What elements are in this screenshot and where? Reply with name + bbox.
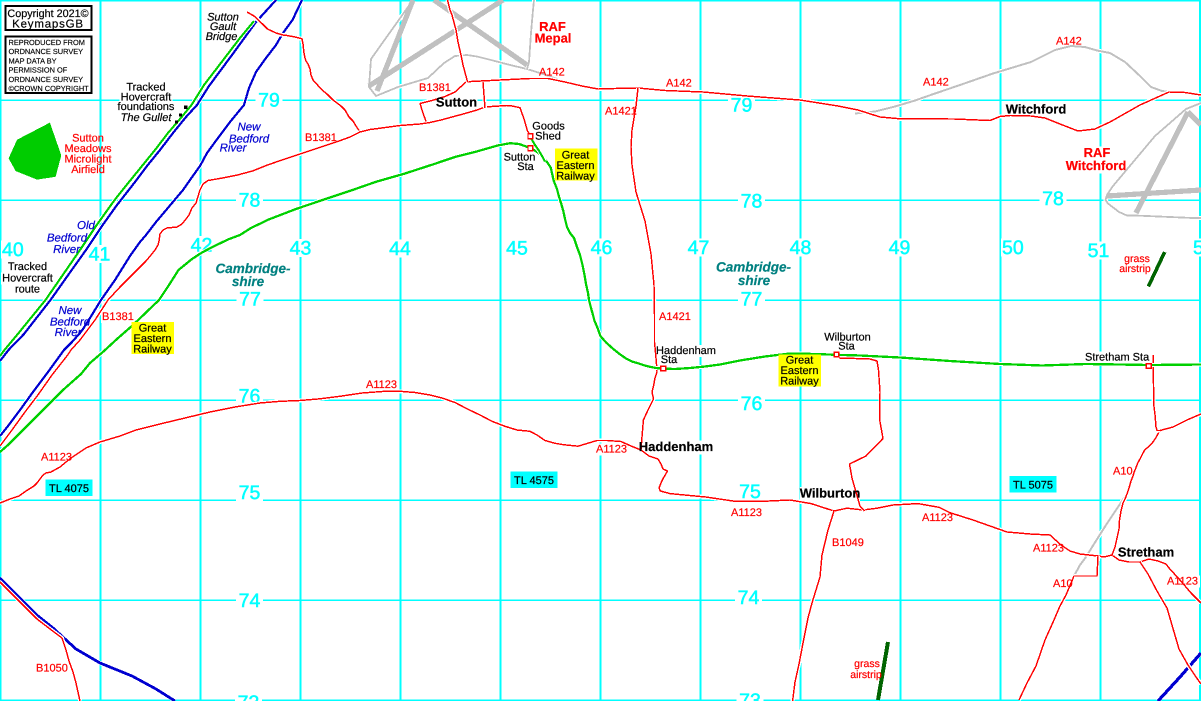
- svg-text:River: River: [55, 327, 83, 339]
- svg-text:Railway: Railway: [780, 375, 819, 387]
- svg-text:River: River: [53, 244, 81, 256]
- svg-text:A1421: A1421: [659, 311, 691, 323]
- svg-text:New: New: [237, 122, 261, 134]
- svg-text:B1381: B1381: [419, 82, 451, 94]
- svg-text:49: 49: [889, 237, 911, 259]
- svg-text:B1050: B1050: [36, 663, 68, 675]
- svg-text:New: New: [58, 305, 82, 317]
- svg-text:TL 4075: TL 4075: [49, 483, 89, 495]
- svg-text:A1123: A1123: [1033, 543, 1064, 555]
- svg-text:51: 51: [1088, 240, 1110, 262]
- svg-text:ORDNANCE SURVEY: ORDNANCE SURVEY: [9, 75, 84, 84]
- svg-text:76: 76: [741, 393, 763, 415]
- svg-text:shire: shire: [232, 274, 265, 289]
- svg-text:Sta: Sta: [517, 161, 534, 173]
- svg-text:shire: shire: [738, 273, 771, 288]
- svg-text:PERMISSION OF: PERMISSION OF: [9, 66, 68, 75]
- svg-text:Sta: Sta: [838, 341, 855, 353]
- svg-text:Witchford: Witchford: [1066, 158, 1127, 173]
- svg-text:Stretham: Stretham: [1118, 545, 1174, 560]
- svg-text:B1381: B1381: [102, 311, 134, 323]
- svg-text:route: route: [15, 284, 40, 296]
- svg-text:52: 52: [1193, 237, 1201, 259]
- svg-text:Shed: Shed: [535, 131, 561, 143]
- svg-text:77: 77: [239, 289, 261, 311]
- svg-text:KeymapsGB: KeymapsGB: [12, 19, 84, 31]
- svg-text:48: 48: [790, 237, 812, 259]
- svg-text:Witchford: Witchford: [1006, 102, 1067, 117]
- svg-text:Railway: Railway: [133, 343, 172, 355]
- svg-text:A1123: A1123: [1167, 576, 1198, 588]
- svg-text:74: 74: [738, 587, 760, 609]
- svg-text:74: 74: [239, 590, 261, 612]
- svg-text:73: 73: [238, 692, 260, 701]
- svg-text:A142: A142: [1056, 36, 1082, 48]
- svg-text:50: 50: [1002, 237, 1024, 259]
- svg-text:Wilburton: Wilburton: [800, 486, 861, 501]
- svg-text:Sutton: Sutton: [436, 94, 477, 109]
- svg-text:44: 44: [389, 238, 411, 260]
- svg-text:47: 47: [688, 237, 710, 259]
- svg-text:Sta: Sta: [661, 354, 678, 366]
- svg-text:B1381: B1381: [305, 132, 337, 144]
- svg-text:Airfield: Airfield: [71, 164, 105, 176]
- svg-text:Bridge: Bridge: [206, 31, 238, 43]
- svg-text:45: 45: [506, 238, 528, 260]
- svg-text:MAP DATA BY: MAP DATA BY: [9, 56, 57, 65]
- svg-text:Haddenham: Haddenham: [639, 439, 713, 454]
- svg-text:airstrip: airstrip: [1119, 263, 1151, 275]
- svg-text:Bedford: Bedford: [47, 232, 88, 244]
- svg-text:A1123: A1123: [41, 452, 72, 464]
- svg-text:B1049: B1049: [832, 537, 864, 549]
- svg-text:Old: Old: [77, 220, 96, 232]
- svg-text:40: 40: [2, 239, 24, 261]
- svg-text:A142: A142: [923, 77, 949, 89]
- svg-text:A1123: A1123: [366, 379, 397, 391]
- svg-text:78: 78: [741, 191, 763, 213]
- svg-text:41: 41: [89, 244, 111, 266]
- svg-text:A10: A10: [1053, 578, 1073, 590]
- svg-text:REPRODUCED FROM: REPRODUCED FROM: [9, 38, 85, 47]
- svg-text:73: 73: [739, 690, 761, 701]
- svg-text:78: 78: [1042, 188, 1064, 210]
- svg-text:Hovercraft: Hovercraft: [2, 272, 53, 284]
- svg-text:ORDNANCE SURVEY: ORDNANCE SURVEY: [9, 47, 84, 56]
- svg-text:A1123: A1123: [596, 444, 627, 456]
- svg-text:A1123: A1123: [731, 507, 762, 519]
- svg-text:The Gullet: The Gullet: [121, 112, 173, 124]
- svg-text:Railway: Railway: [556, 170, 595, 182]
- svg-text:River: River: [220, 143, 248, 155]
- svg-text:A1421: A1421: [605, 106, 637, 118]
- svg-text:46: 46: [591, 237, 613, 259]
- svg-text:Mepal: Mepal: [535, 30, 572, 45]
- svg-text:43: 43: [290, 238, 312, 260]
- svg-text:©CROWN COPYRIGHT: ©CROWN COPYRIGHT: [9, 84, 90, 93]
- svg-text:Stretham Sta: Stretham Sta: [1085, 352, 1150, 364]
- svg-text:A142: A142: [539, 67, 565, 79]
- svg-text:Tracked: Tracked: [8, 261, 47, 273]
- svg-text:airstrip: airstrip: [850, 669, 882, 681]
- svg-text:75: 75: [239, 482, 261, 504]
- svg-text:A1123: A1123: [922, 512, 953, 524]
- svg-text:77: 77: [741, 289, 763, 311]
- svg-text:A10: A10: [1113, 466, 1133, 478]
- svg-text:79: 79: [258, 90, 280, 112]
- svg-text:A142: A142: [666, 78, 692, 90]
- svg-text:78: 78: [239, 190, 261, 212]
- svg-text:TL 5075: TL 5075: [1013, 480, 1053, 492]
- svg-text:TL 4575: TL 4575: [514, 475, 554, 487]
